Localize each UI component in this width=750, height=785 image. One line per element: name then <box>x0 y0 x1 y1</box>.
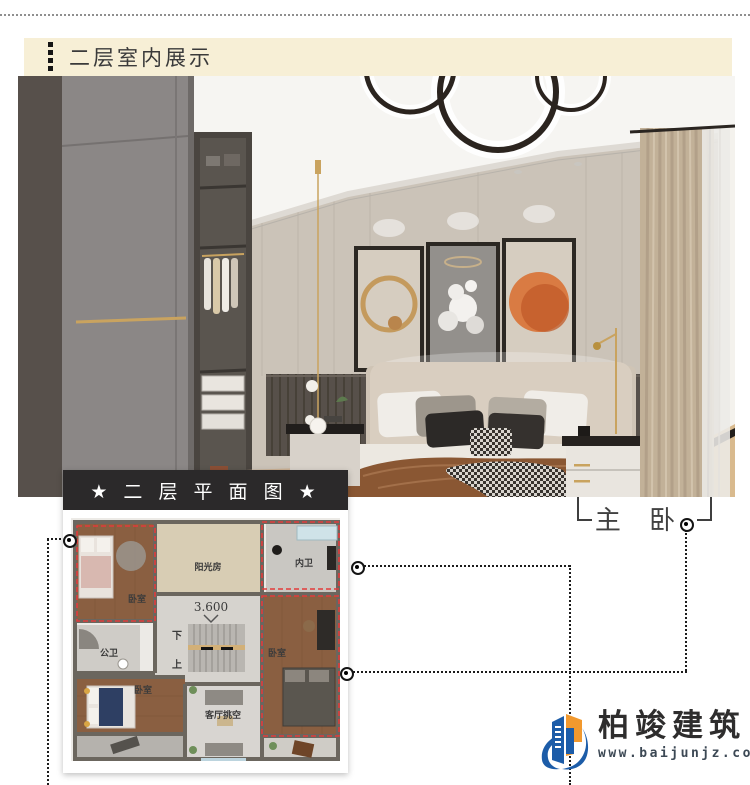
logo-website: www.baijunjz.com <box>598 746 750 761</box>
dashed-bar-icon <box>48 42 53 72</box>
callout-bracket-right <box>697 497 712 521</box>
logo-text: 柏竣建筑 www.baijunjz.com <box>598 708 750 761</box>
label-elevation: 3.600 <box>194 600 228 614</box>
leader-line-left-vertical <box>47 539 49 785</box>
page: 二层室内展示 <box>0 0 750 785</box>
leader-line-master-vertical <box>685 530 687 671</box>
leader-line-master-horizontal <box>349 671 687 673</box>
label-bedroom-top-left: 卧室 <box>128 593 146 605</box>
callout-bracket-left <box>577 497 592 521</box>
logo-icon <box>538 708 590 774</box>
label-bedroom-bottom-left: 卧室 <box>134 684 152 696</box>
section-title: 二层室内展示 <box>69 42 213 72</box>
label-master-bedroom: 卧室 <box>268 647 286 659</box>
label-stair-up: 上 <box>172 658 182 671</box>
leader-dot-bedroom-top-left <box>63 534 77 548</box>
section-header: 二层室内展示 <box>24 38 732 76</box>
company-logo: 柏竣建筑 www.baijunjz.com <box>538 708 750 774</box>
bedroom-photo <box>18 76 735 497</box>
callout-label: 主 卧 <box>592 500 688 537</box>
logo-company-name: 柏竣建筑 <box>598 708 750 744</box>
room-sunroom <box>155 522 262 594</box>
bedroom-scene <box>18 76 735 497</box>
label-stair-down: 下 <box>172 630 182 642</box>
open-closet <box>194 132 252 497</box>
floor-plan-body: 卧室 阳光房 内卫 公卫 卧室 卧室 客厅挑空 下 上 3.600 <box>63 510 348 773</box>
leader-dot-master-plan <box>340 667 354 681</box>
floor-plan-drawing: 卧室 阳光房 内卫 公卫 卧室 卧室 客厅挑空 下 上 3.600 <box>71 518 340 761</box>
floor-plan-card: ★ 二 层 平 面 图 ★ <box>63 470 348 773</box>
leader-dot-master-label <box>680 518 694 532</box>
label-inner-bath: 内卫 <box>295 557 313 569</box>
label-sunroom: 阳光房 <box>194 561 221 573</box>
leader-line-mid-horizontal <box>360 565 570 567</box>
floor-plan-title: ★ 二 层 平 面 图 ★ <box>63 470 348 510</box>
wardrobe <box>18 76 194 497</box>
label-public-bath: 公卫 <box>100 648 118 659</box>
top-dotted-divider <box>0 14 750 16</box>
label-living-void: 客厅挑空 <box>204 709 241 721</box>
sheer-curtain <box>702 128 730 497</box>
leader-dot-inner-bath <box>351 561 365 575</box>
stairs <box>188 624 245 672</box>
artwork-ring <box>356 248 422 370</box>
wall-artworks <box>356 240 574 372</box>
